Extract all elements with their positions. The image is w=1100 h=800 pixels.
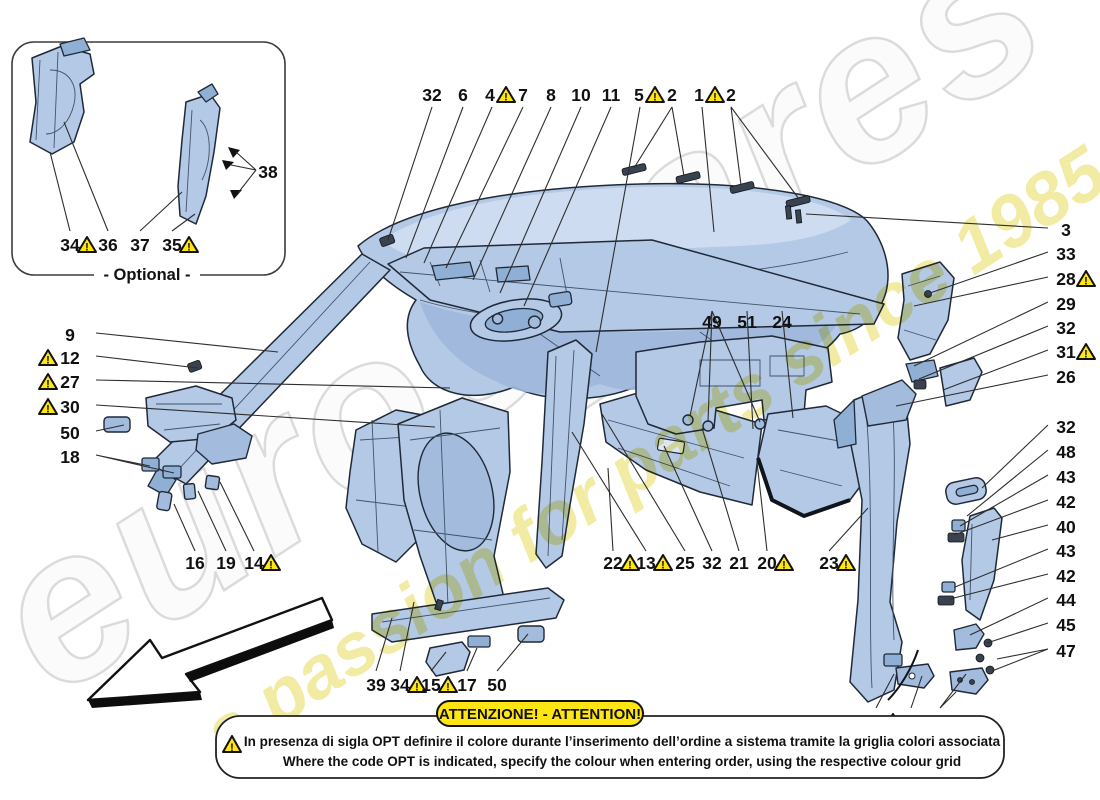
callout-11: 11 (602, 85, 621, 105)
callout-35: 35 (162, 235, 182, 255)
warning-exclamation-mark: ! (269, 560, 273, 572)
callout-29: 29 (1056, 294, 1076, 314)
callout-24: 24 (772, 312, 792, 332)
callout-26: 26 (1056, 367, 1076, 387)
callout-1: 1 (694, 85, 704, 105)
callout-34: 34 (60, 235, 80, 255)
callout-19: 19 (216, 553, 236, 573)
warning-exclamation-mark: ! (187, 242, 191, 254)
part-clip-42-lower (938, 596, 954, 605)
callout-21: 21 (729, 553, 749, 573)
callout-34: 34 (390, 675, 410, 695)
part-clip-50-left (104, 417, 130, 432)
callout-49: 49 (702, 312, 722, 332)
callout-27: 27 (60, 372, 79, 392)
callout-32: 32 (702, 553, 722, 573)
callout-45: 45 (1056, 615, 1076, 635)
callout-37: 37 (130, 235, 149, 255)
attention-line2: Where the code OPT is indicated, specify… (283, 754, 961, 769)
part-bracket-14 (205, 475, 220, 490)
callout-50: 50 (60, 423, 80, 443)
callout-36: 36 (98, 235, 118, 255)
callout-20: 20 (757, 553, 777, 573)
callout-42: 42 (1056, 492, 1076, 512)
callout-13: 13 (636, 553, 656, 573)
callout-18: 18 (60, 447, 80, 467)
warning-exclamation-mark: ! (844, 560, 848, 572)
callout-39: 39 (366, 675, 386, 695)
warning-exclamation-mark: ! (782, 560, 786, 572)
part-screw-47b (986, 666, 994, 674)
callout-2: 2 (726, 85, 736, 105)
part-clip-35 (884, 654, 902, 666)
callout-8: 8 (546, 85, 556, 105)
callout-40: 40 (1056, 517, 1076, 537)
callout-14: 14 (244, 553, 264, 573)
callout-9: 9 (65, 325, 75, 345)
callout-12: 12 (60, 348, 80, 368)
callout-33: 33 (1056, 244, 1076, 264)
warning-exclamation-mark: ! (504, 92, 508, 104)
attention-banner-text: ATTENZIONE! - ATTENTION! (439, 706, 641, 723)
warning-exclamation-mark: ! (1084, 276, 1088, 288)
diagram-canvas: eurospares (0, 0, 1100, 800)
callout-31: 31 (1056, 342, 1076, 362)
part-clip-43-lower (942, 582, 955, 592)
warning-exclamation-mark: ! (1084, 349, 1088, 361)
callout-2: 2 (667, 85, 677, 105)
callout-25: 25 (675, 553, 695, 573)
callout-15: 15 (421, 675, 441, 695)
callout-17: 17 (457, 675, 476, 695)
callout-5: 5 (634, 85, 644, 105)
callout-51: 51 (737, 312, 757, 332)
callout-32: 32 (1056, 318, 1076, 338)
callout-28: 28 (1056, 269, 1076, 289)
callout-43: 43 (1056, 541, 1076, 561)
callout-6: 6 (458, 85, 468, 105)
warning-exclamation-mark: ! (713, 92, 717, 104)
part-clip-17 (468, 636, 490, 647)
callout-4: 4 (485, 85, 495, 105)
callout-22: 22 (603, 553, 623, 573)
part-bracket-16 (156, 491, 172, 511)
callout-48: 48 (1056, 442, 1076, 462)
part-clip-32-right (914, 380, 926, 389)
callout-3: 3 (1061, 220, 1071, 240)
warning-exclamation-mark: ! (628, 560, 632, 572)
callout-32: 32 (1056, 417, 1076, 437)
part-clip-50-bottom (518, 626, 544, 642)
callout-30: 30 (60, 397, 80, 417)
part-clip-43-upper (952, 520, 965, 531)
callout-50: 50 (487, 675, 507, 695)
callout-10: 10 (571, 85, 591, 105)
callout-38: 38 (258, 162, 278, 182)
callout-44: 44 (1056, 590, 1076, 610)
warning-exclamation-mark: ! (230, 742, 234, 754)
warning-exclamation-mark: ! (46, 379, 50, 391)
parts-diagram-page: eurospares (0, 0, 1100, 800)
callout-42: 42 (1056, 566, 1076, 586)
part-screw-47a (976, 654, 984, 662)
callout-32: 32 (422, 85, 442, 105)
callout-23: 23 (819, 553, 839, 573)
warning-exclamation-mark: ! (653, 92, 657, 104)
callout-16: 16 (185, 553, 205, 573)
warning-exclamation-mark: ! (85, 242, 89, 254)
callout-43: 43 (1056, 467, 1076, 487)
optional-label: - Optional - (103, 266, 190, 284)
callout-47: 47 (1056, 641, 1075, 661)
part-bracket-19 (183, 483, 196, 499)
warning-exclamation-mark: ! (446, 682, 450, 694)
warning-exclamation-mark: ! (415, 682, 419, 694)
warning-exclamation-mark: ! (46, 404, 50, 416)
warning-exclamation-mark: ! (661, 560, 665, 572)
callout-7: 7 (518, 85, 528, 105)
warning-exclamation-mark: ! (46, 355, 50, 367)
attention-line1: In presenza di sigla OPT definire il col… (244, 734, 1001, 749)
